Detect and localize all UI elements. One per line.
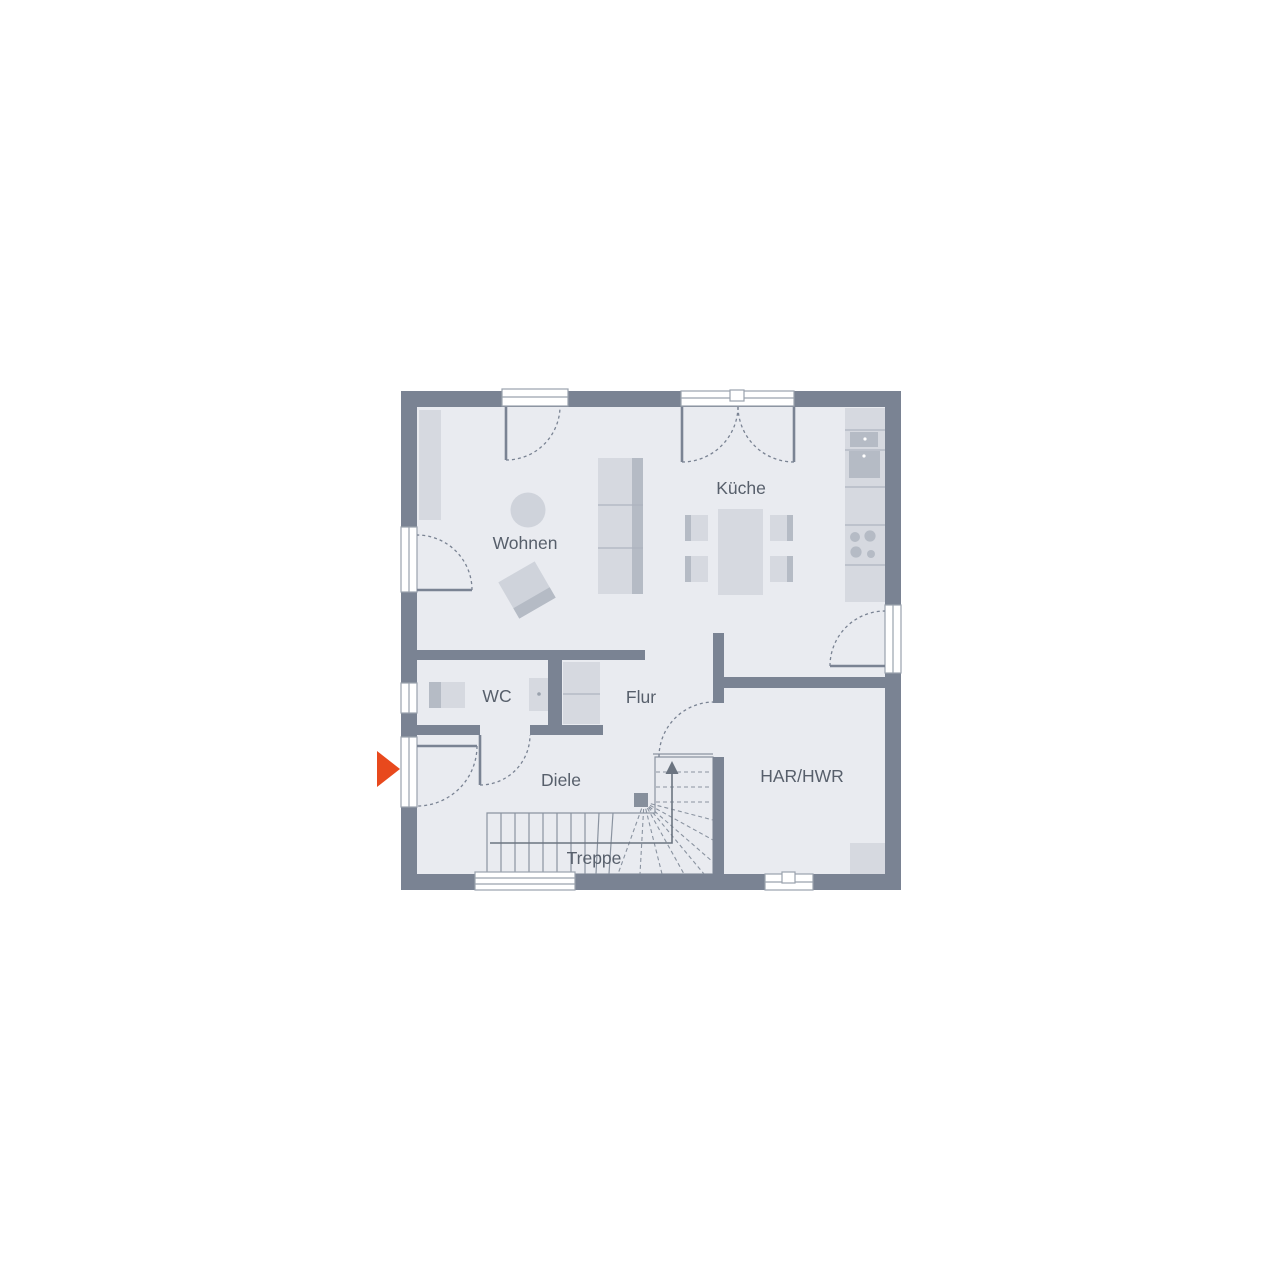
shelf-cabinet-side bbox=[632, 458, 643, 594]
wall-outer-top bbox=[401, 391, 901, 407]
wall-flur-stub bbox=[713, 633, 724, 703]
label-har-hwr: HAR/HWR bbox=[760, 766, 844, 786]
washbasin bbox=[441, 682, 465, 708]
round-table bbox=[511, 493, 546, 528]
sideboard bbox=[419, 410, 441, 520]
wall-wc-bottom-right bbox=[530, 725, 603, 735]
label-treppe: Treppe bbox=[567, 848, 622, 868]
window-marker-top bbox=[730, 390, 744, 401]
hall-closet bbox=[563, 662, 600, 724]
newel-post bbox=[634, 793, 648, 807]
label-diele: Diele bbox=[541, 770, 581, 790]
wall-utility-top bbox=[724, 677, 885, 688]
window-marker-bottom bbox=[782, 872, 795, 883]
label-flur: Flur bbox=[626, 687, 656, 707]
wall-stair-utility bbox=[713, 757, 724, 874]
label-wc: WC bbox=[482, 686, 511, 706]
wall-hall-top bbox=[417, 650, 645, 660]
floor-plan-drawing: Wohnen Küche WC Flur Diele HAR/HWR Trepp… bbox=[0, 0, 1280, 1280]
utility-equipment bbox=[850, 843, 885, 874]
window-stair-bottom bbox=[475, 872, 575, 890]
washbasin-counter bbox=[429, 682, 441, 708]
floor-area bbox=[416, 406, 886, 875]
wall-wc-flur bbox=[548, 650, 562, 735]
wall-outer-left bbox=[401, 391, 417, 890]
dining-table bbox=[718, 509, 763, 595]
label-wohnen: Wohnen bbox=[493, 533, 558, 553]
wall-wc-bottom-left bbox=[417, 725, 480, 735]
label-kueche: Küche bbox=[716, 478, 766, 498]
entrance-arrow bbox=[377, 751, 400, 787]
floor-plan-canvas: Wohnen Küche WC Flur Diele HAR/HWR Trepp… bbox=[0, 0, 1280, 1280]
